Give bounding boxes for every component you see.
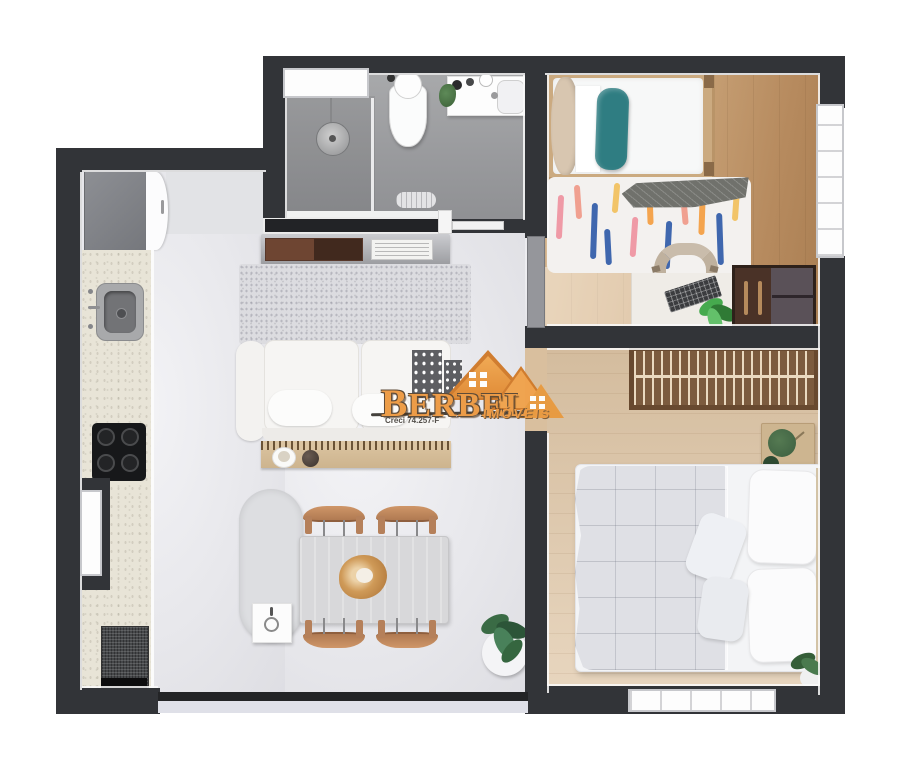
wall-bedroom2-left: [525, 431, 547, 695]
toilet-cistern-plate: [394, 71, 422, 99]
logo-house-window: [469, 372, 476, 378]
sofa-cushion-left: [268, 390, 332, 426]
chair-spindle: [343, 520, 345, 536]
window-bedroom2-bottom: [628, 689, 776, 712]
window-bathroom: [283, 68, 369, 98]
chair-post: [429, 516, 436, 534]
chair-post: [429, 620, 436, 638]
pillow-small-bottom: [696, 575, 750, 643]
wardrobe-rack: [629, 346, 819, 410]
burner-4: [121, 454, 139, 472]
baseboard: [547, 75, 549, 238]
chair-spindle: [343, 618, 345, 634]
dresser-handle-1: [744, 281, 748, 315]
rug-stripe: [612, 183, 621, 213]
baseboard: [545, 73, 820, 75]
burner-3: [97, 454, 115, 472]
chair-post: [305, 620, 312, 638]
baseboard: [547, 433, 549, 693]
bathroom-door-jamb: [438, 210, 452, 234]
bed-post-top: [704, 74, 714, 88]
shower-zone: [283, 96, 375, 218]
console-plaque-lines: [375, 243, 429, 256]
shower-drain-dot: [329, 135, 336, 142]
bathroom-door-leaf: [452, 221, 504, 230]
console-drawers: [265, 238, 363, 261]
rug-stripe: [630, 217, 639, 257]
pillow-large-top: [746, 469, 819, 565]
dining-chair-bottom-right: [376, 618, 438, 652]
shower-arm: [330, 98, 332, 124]
centerpiece-inner: [356, 568, 373, 583]
bedroom1-pale-floor-strip: [545, 267, 631, 330]
window-kitchen-left: [80, 490, 102, 576]
vanity-mirror: [479, 73, 493, 87]
logo-registration-text: Creci 74.257-F: [385, 416, 439, 425]
toilet-flush-dot: [387, 74, 395, 82]
bedroom1-door-leaf: [527, 236, 545, 328]
living-rug: [239, 264, 471, 344]
pillow-large-bottom: [746, 567, 819, 663]
burner-2: [121, 428, 139, 446]
rug-stripe: [716, 213, 724, 265]
vanity-faucet: [491, 92, 498, 99]
chair-post: [356, 620, 363, 638]
sink-faucet: [88, 306, 100, 309]
logo-tagline-text: IMÓVEIS: [482, 406, 552, 421]
dresser-drawer-gap: [772, 295, 814, 298]
pillow-teal: [595, 87, 630, 170]
chair-spindle: [416, 520, 418, 536]
wall-bathroom-bedroom1: [525, 56, 547, 238]
baseboard: [547, 348, 820, 350]
chair-post: [356, 516, 363, 534]
logo-house3-window: [530, 396, 536, 401]
chair-spindle: [396, 618, 398, 634]
baseboard: [547, 324, 820, 326]
sink-drain: [116, 308, 127, 319]
baseboard: [82, 170, 266, 172]
nightstand-plant-large: [768, 429, 796, 457]
wall-right-upper: [820, 56, 845, 108]
bed-post-bottom: [704, 162, 714, 176]
bench-device-button: [264, 617, 279, 632]
chair-post: [378, 516, 385, 534]
baseboard: [547, 684, 820, 686]
dresser-handle-2: [758, 281, 762, 315]
bench-device-pin: [270, 607, 273, 616]
tv: [263, 217, 449, 234]
chair-spindle: [416, 618, 418, 634]
window-bedroom1-right: [816, 104, 844, 258]
baseboard: [523, 75, 525, 220]
dining-chair-top-left: [303, 502, 365, 536]
living-glass-door: [158, 692, 528, 701]
living-glass-sill: [158, 701, 528, 713]
chair-spindle: [323, 520, 325, 536]
rug-stripe: [574, 185, 582, 219]
wall-bottom-left-corner: [56, 688, 160, 714]
rug-stripe: [604, 229, 612, 265]
sink-handle-bottom: [88, 324, 93, 329]
bath-mat: [396, 192, 436, 208]
chair-post: [305, 516, 312, 534]
wardrobe-rail: [634, 375, 814, 378]
wall-kitchen-top: [56, 148, 268, 172]
dining-chair-bottom-left: [303, 618, 365, 652]
shower-glass-partition: [371, 98, 374, 216]
chair-spindle: [396, 520, 398, 536]
burner-1: [97, 428, 115, 446]
appliance-handle: [161, 200, 164, 214]
baseboard: [82, 686, 158, 688]
rug-stripe: [590, 203, 598, 259]
sink-handle-top: [88, 289, 93, 294]
wall-right-main: [820, 256, 845, 696]
rug-stripe: [556, 195, 564, 239]
wall-left: [56, 148, 82, 714]
vanity-accessory-dot: [466, 78, 474, 86]
chair-post: [378, 620, 385, 638]
watermark-logo: BERBEL Creci 74.257-F IMÓVEIS: [355, 340, 565, 435]
dining-chair-top-right: [376, 502, 438, 536]
shelf-dome-decor: [278, 451, 290, 462]
kitchen-upper-cabinet: [166, 170, 267, 234]
shelf-sphere-decor: [302, 450, 319, 467]
chair-spindle: [323, 618, 325, 634]
baseboard: [80, 172, 82, 690]
refrigerator-cabinet: [84, 170, 148, 252]
apartment-floor-plan: BERBEL Creci 74.257-F IMÓVEIS: [0, 0, 922, 768]
wall-between-bedrooms: [525, 326, 845, 348]
sofa-armrest: [236, 341, 266, 441]
vanity-basin: [497, 80, 525, 114]
